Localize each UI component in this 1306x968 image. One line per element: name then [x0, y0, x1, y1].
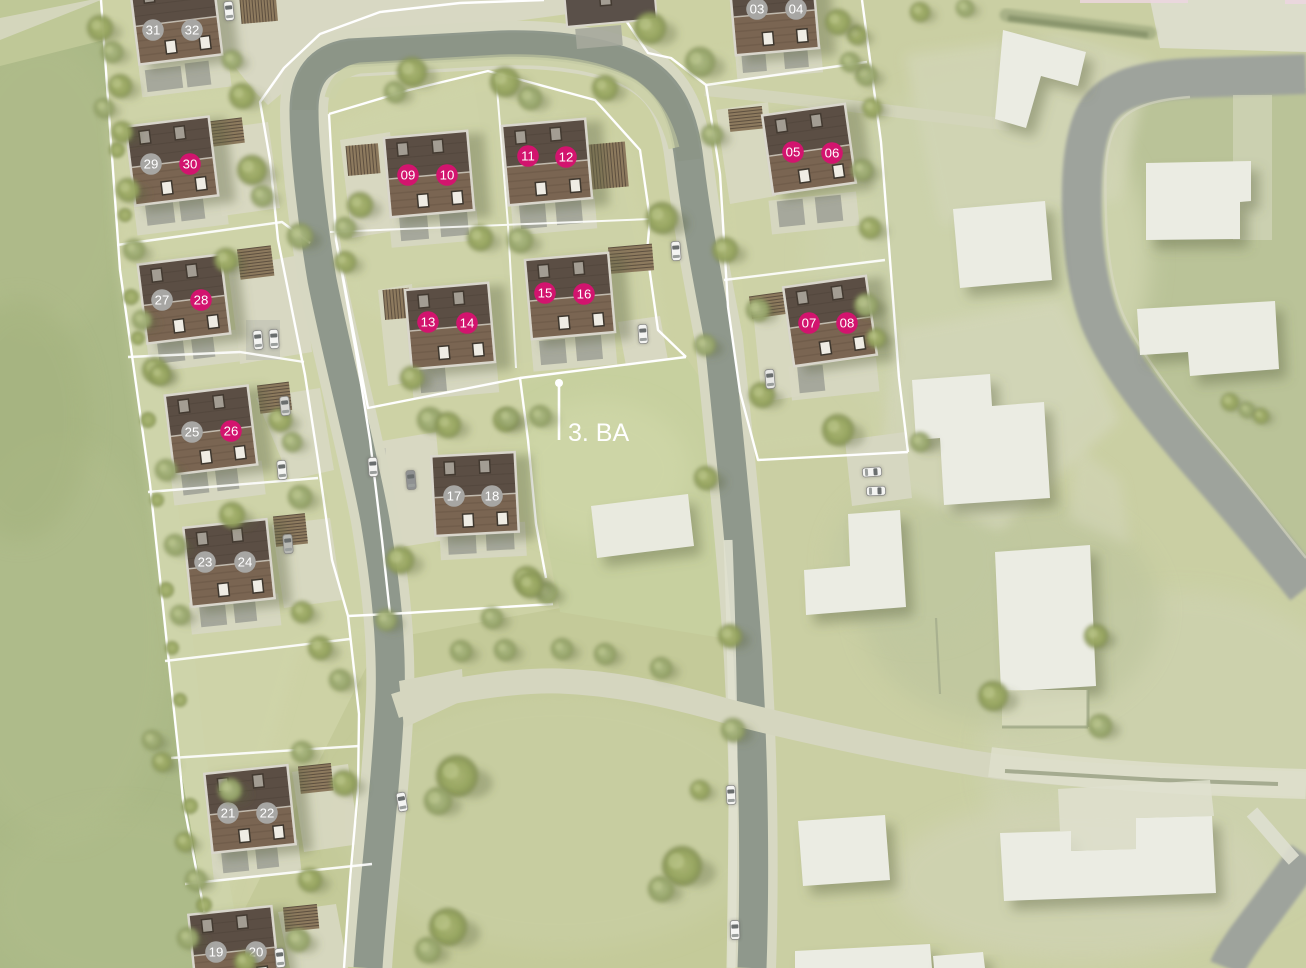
svg-text:28: 28 — [194, 293, 209, 308]
svg-text:30: 30 — [183, 157, 198, 172]
svg-text:19: 19 — [209, 945, 224, 960]
svg-text:3. BA: 3. BA — [568, 419, 629, 447]
svg-text:09: 09 — [401, 168, 416, 183]
svg-text:26: 26 — [224, 424, 239, 439]
svg-text:14: 14 — [460, 316, 475, 331]
svg-text:07: 07 — [802, 316, 817, 331]
svg-text:11: 11 — [521, 149, 535, 164]
svg-text:24: 24 — [238, 555, 253, 570]
svg-text:10: 10 — [440, 168, 455, 183]
svg-text:16: 16 — [577, 287, 592, 302]
svg-text:31: 31 — [146, 23, 161, 38]
svg-text:06: 06 — [825, 146, 840, 161]
svg-text:25: 25 — [185, 425, 200, 440]
svg-text:22: 22 — [260, 806, 275, 821]
svg-text:17: 17 — [447, 489, 462, 504]
svg-text:23: 23 — [198, 555, 213, 570]
svg-text:08: 08 — [840, 316, 855, 331]
svg-text:27: 27 — [155, 293, 170, 308]
svg-text:04: 04 — [789, 2, 804, 17]
svg-text:21: 21 — [221, 806, 236, 821]
svg-text:15: 15 — [538, 286, 553, 301]
svg-text:32: 32 — [185, 23, 200, 38]
svg-text:18: 18 — [485, 489, 500, 504]
svg-text:13: 13 — [421, 315, 436, 330]
svg-text:03: 03 — [750, 2, 765, 17]
svg-text:12: 12 — [559, 150, 574, 165]
svg-text:05: 05 — [786, 145, 801, 160]
svg-text:29: 29 — [144, 157, 159, 172]
